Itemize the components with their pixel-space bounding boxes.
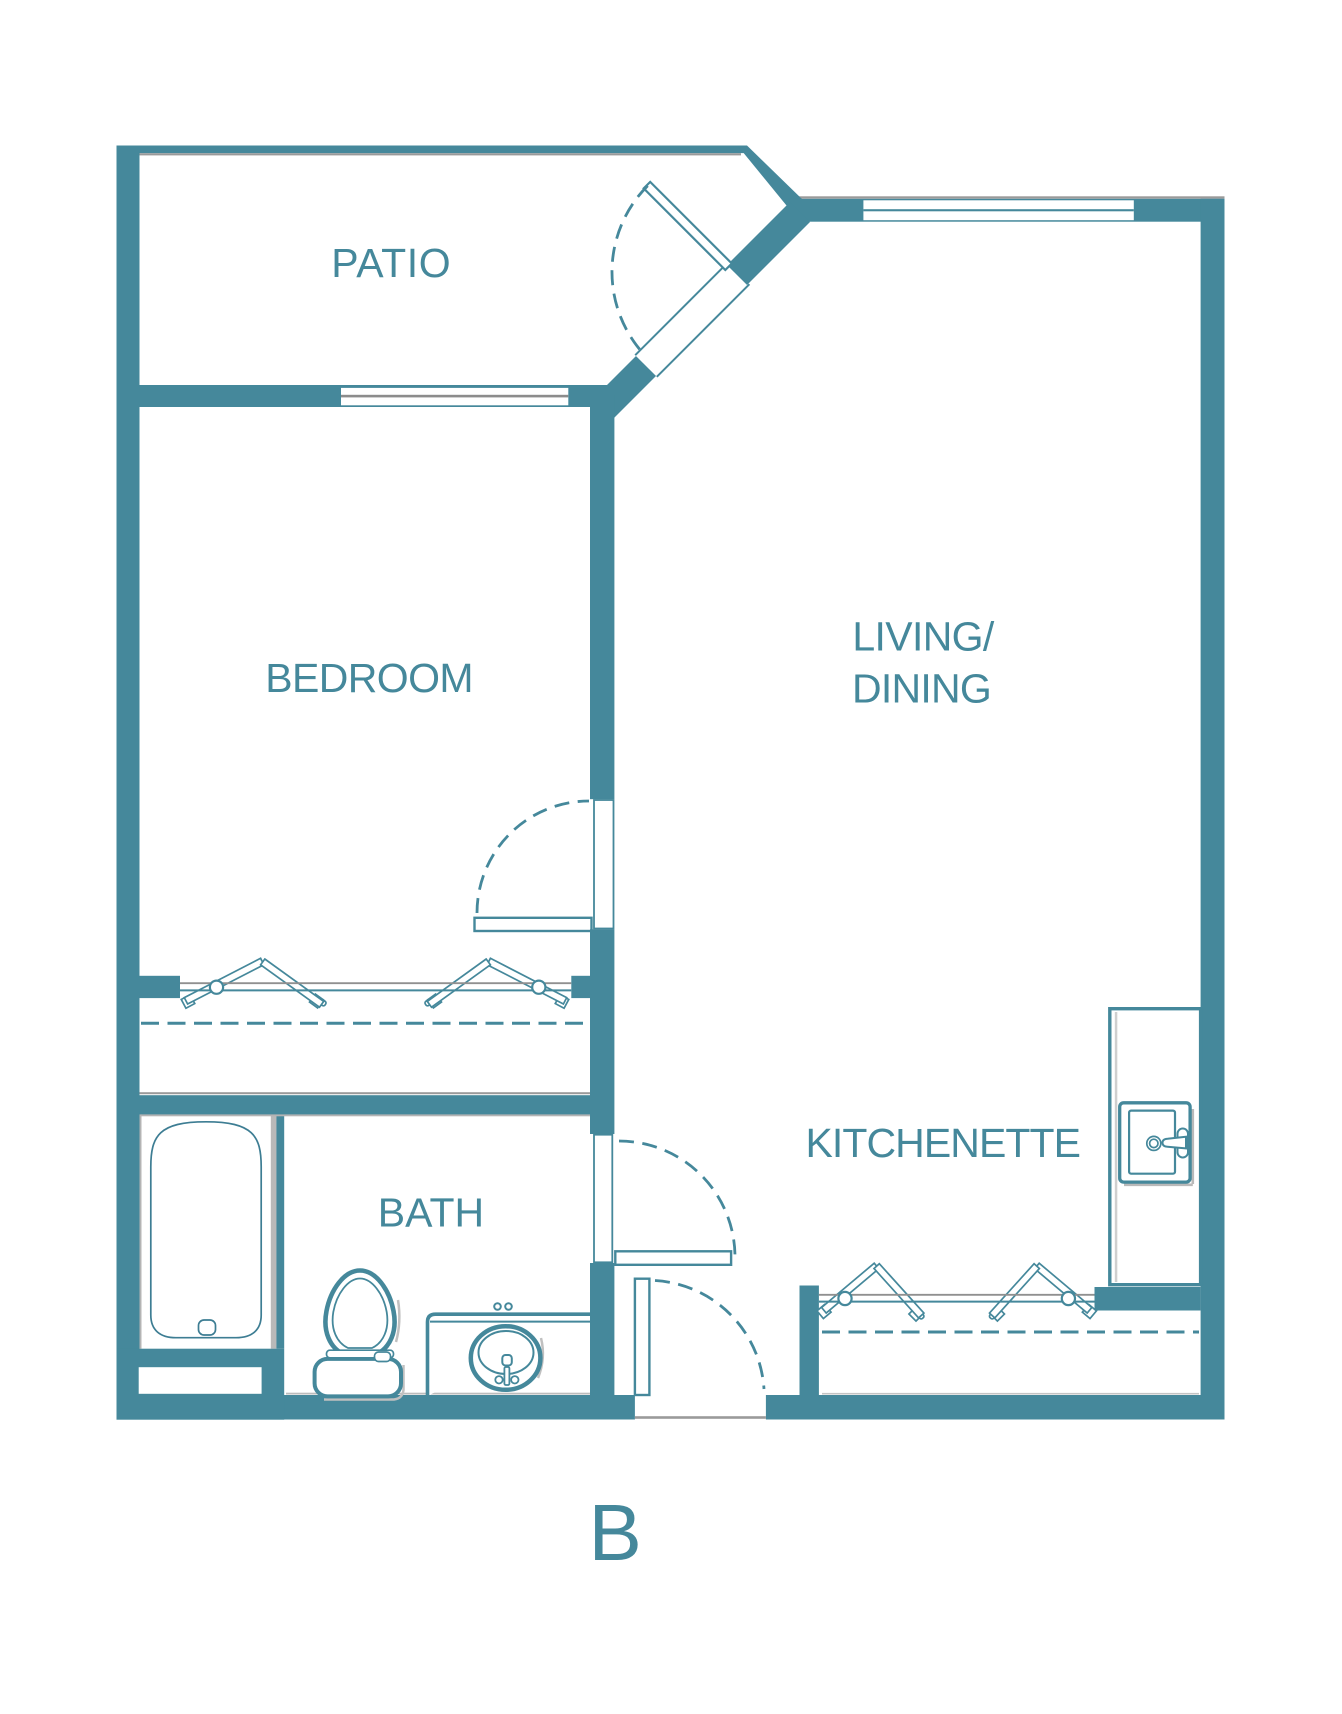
svg-text:LIVING/: LIVING/ bbox=[852, 613, 995, 659]
svg-text:BEDROOM: BEDROOM bbox=[265, 655, 473, 701]
svg-text:BATH: BATH bbox=[378, 1189, 484, 1235]
svg-text:B: B bbox=[589, 1488, 642, 1577]
svg-text:PATIO: PATIO bbox=[331, 240, 451, 286]
svg-text:KITCHENETTE: KITCHENETTE bbox=[806, 1120, 1081, 1166]
svg-text:DINING: DINING bbox=[852, 666, 991, 712]
